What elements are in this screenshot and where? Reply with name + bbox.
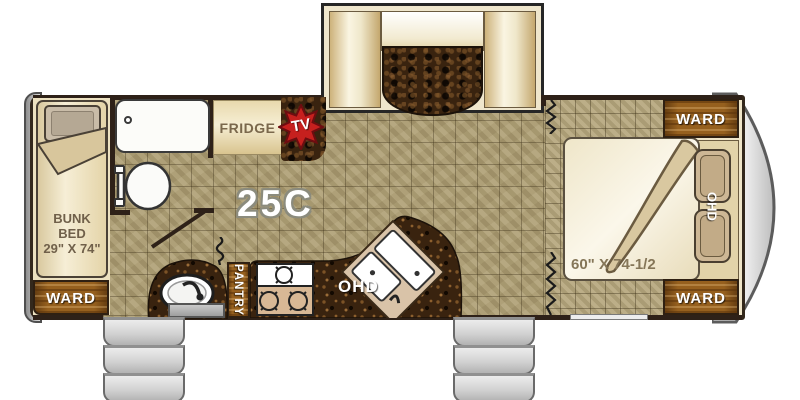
bunk-label-size: 29" X 74" — [34, 242, 110, 257]
wardrobe-rear: WARD — [33, 280, 109, 315]
step-tread — [453, 317, 535, 347]
sofa-table — [382, 46, 483, 116]
bed-size-label: 60" X 74-1/2 — [571, 256, 656, 273]
sofa-seat-right — [484, 11, 536, 108]
vanity-base — [168, 303, 225, 318]
wall-bottom-3 — [648, 315, 742, 320]
step-tread — [103, 373, 185, 400]
wardrobe-front-top: WARD — [663, 99, 739, 138]
bedroom-window — [570, 314, 648, 320]
curtain-squiggle — [213, 237, 227, 265]
bedroom-ohd-label: OHD — [705, 187, 720, 227]
fridge: FRIDGE — [213, 100, 282, 155]
sofa-seat-left — [329, 11, 381, 108]
toilet-icon — [114, 160, 178, 212]
step-tread — [453, 345, 535, 375]
sofa-back-cushion — [381, 11, 484, 51]
step-tread — [103, 317, 185, 347]
sofa-slideout — [321, 3, 544, 113]
bunk-label-line2: BED — [34, 227, 110, 242]
stove-icon — [256, 263, 314, 316]
bunk-label: BUNK BED 29" X 74" — [34, 212, 110, 257]
step-tread — [453, 373, 535, 400]
wardrobe-front-bottom: WARD — [663, 279, 739, 315]
rv-floorplan: BUNK BED 29" X 74" WARD FRIDGE TV 25C — [0, 0, 800, 400]
kitchen-ohd-label: OHD — [338, 277, 379, 297]
fridge-label: FRIDGE — [214, 120, 281, 136]
curtain-zigzag-top — [544, 100, 558, 134]
wall-bottom-1 — [33, 315, 103, 320]
bunk-label-line1: BUNK — [34, 212, 110, 227]
bathtub-drain — [124, 116, 132, 124]
wardrobe-front-bottom-label: WARD — [665, 290, 737, 307]
curtain-zigzag-bottom — [544, 252, 558, 315]
step-tread — [103, 345, 185, 375]
entry-steps-right — [453, 319, 535, 400]
wardrobe-rear-label: WARD — [35, 290, 107, 307]
pantry-label: PANTRY — [232, 261, 244, 319]
bathtub — [115, 99, 210, 153]
wardrobe-front-top-label: WARD — [665, 111, 737, 128]
entry-steps-left — [103, 319, 185, 400]
bunk-blanket-fold — [36, 120, 108, 178]
